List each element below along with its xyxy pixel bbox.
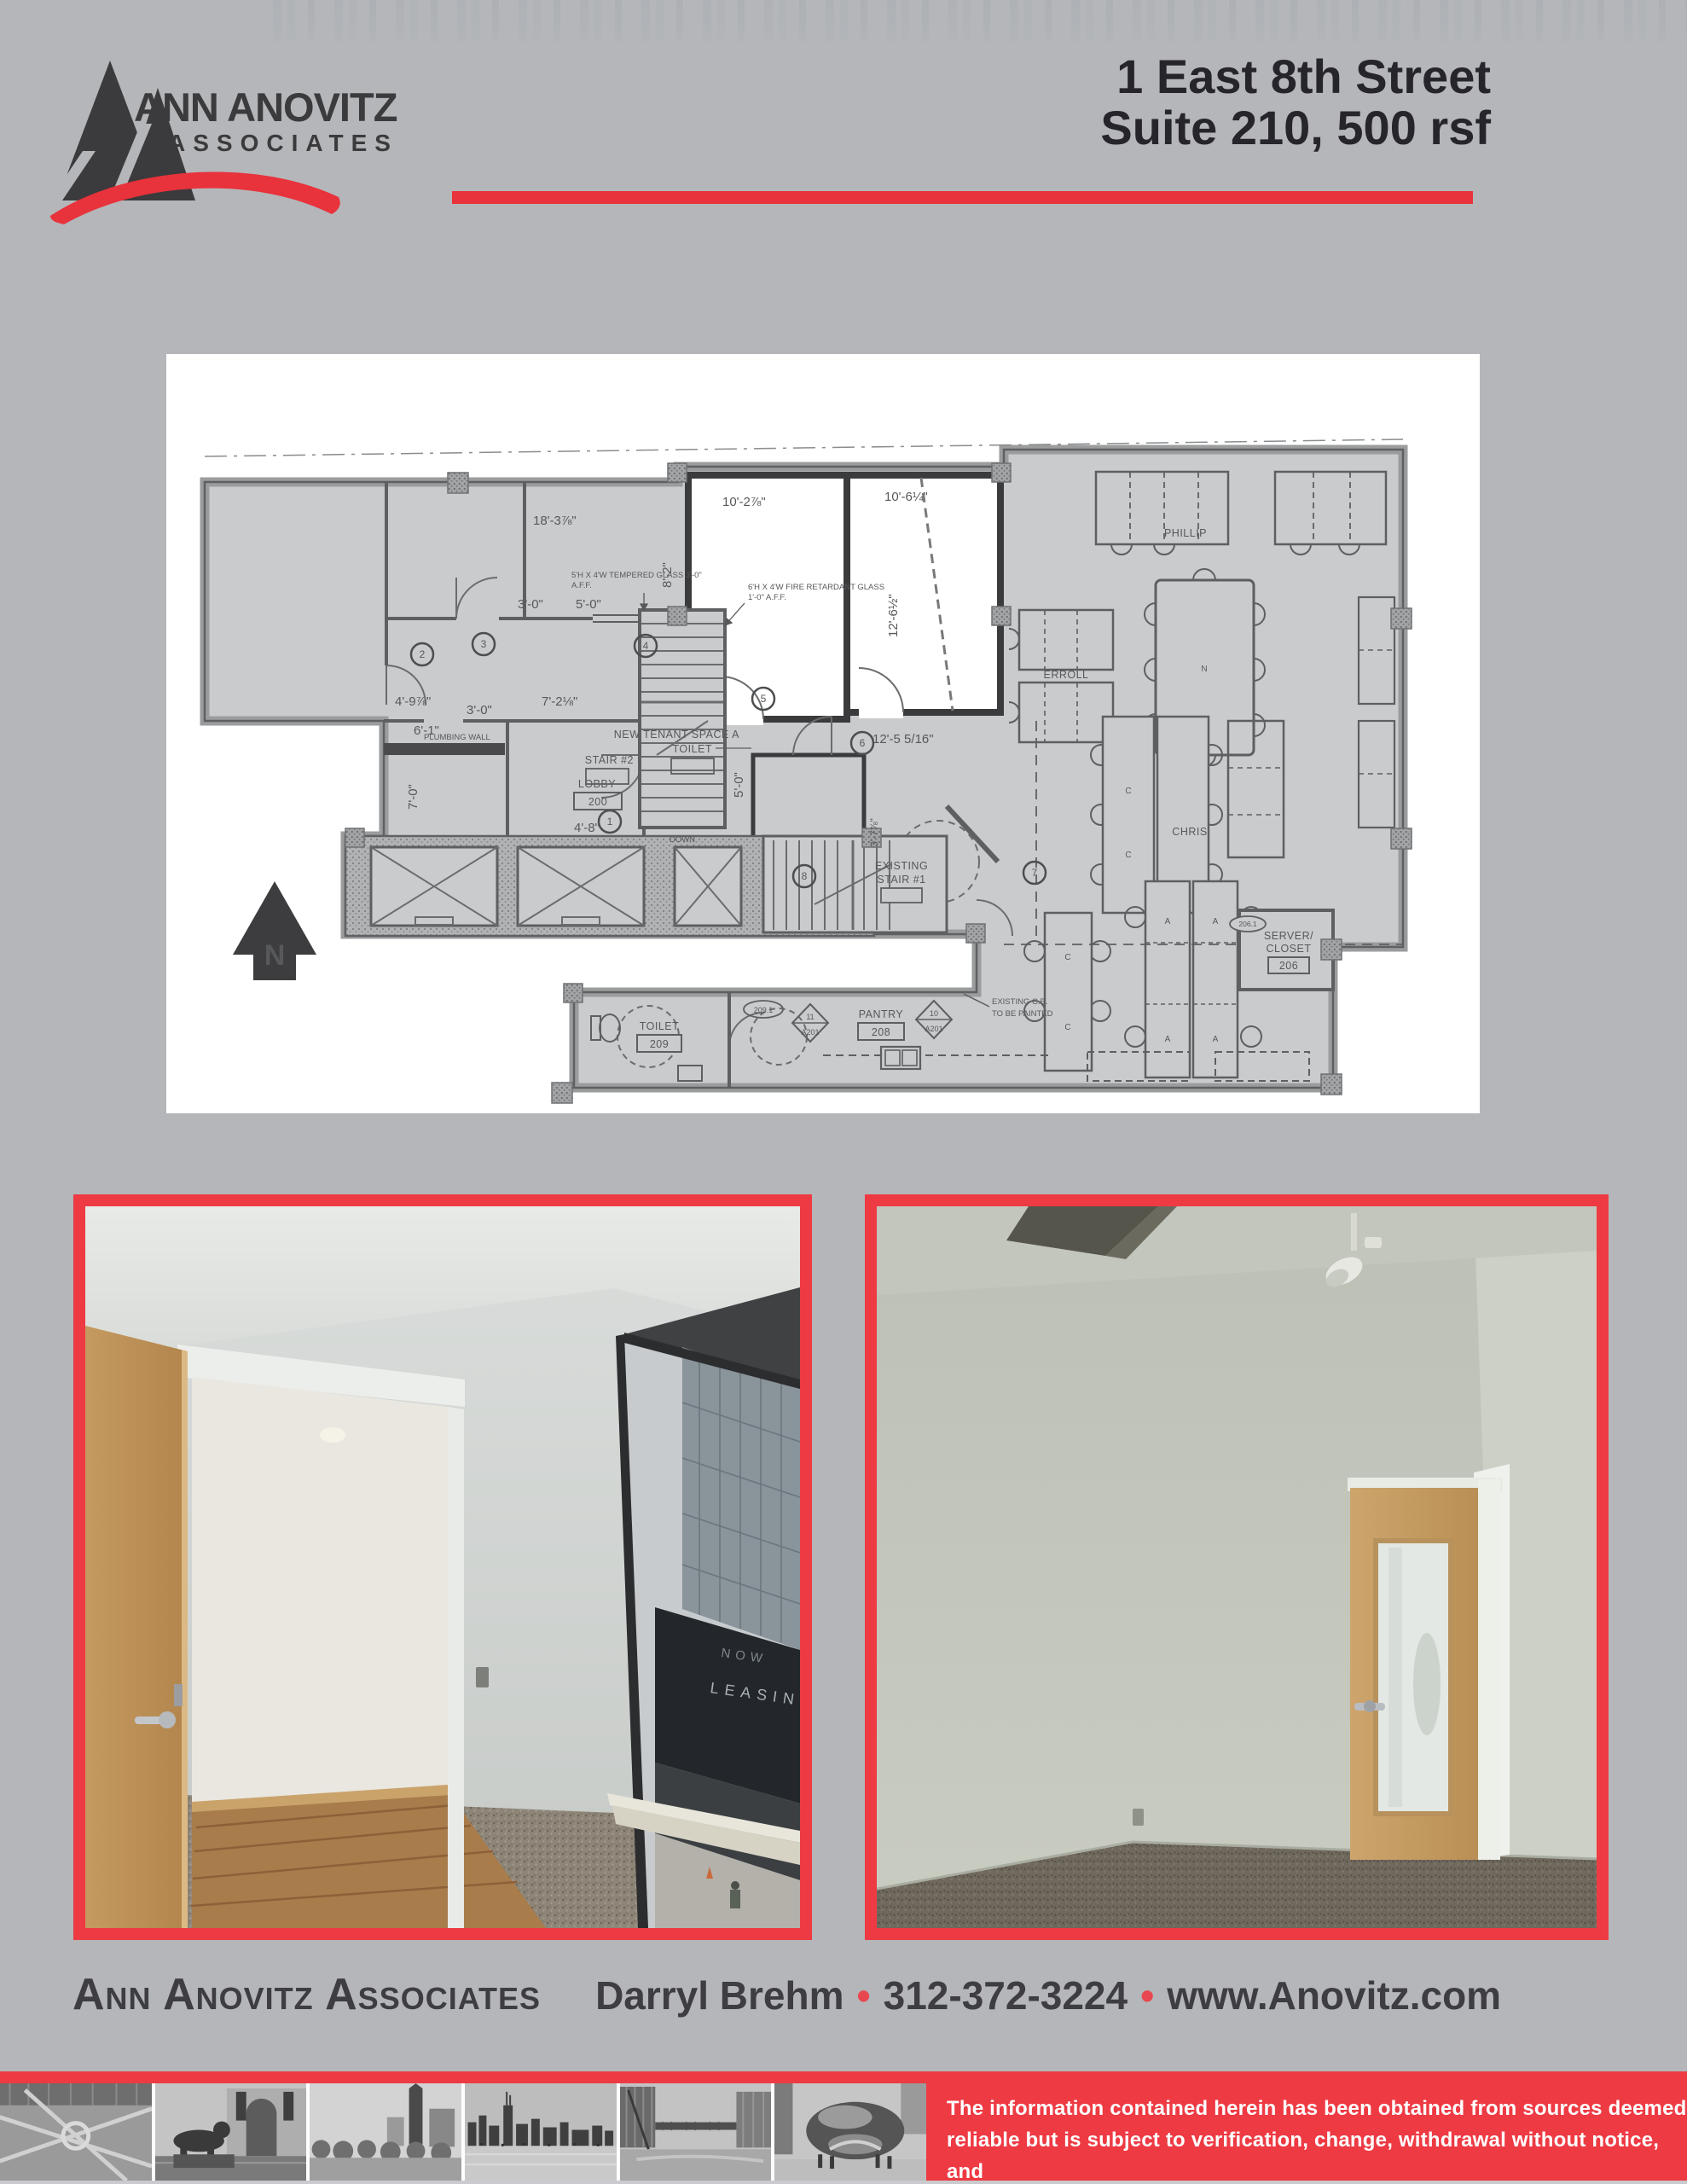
label-toilet: TOILET [640,1020,680,1032]
label-toilet-tag: 209.1 [754,1006,774,1014]
detail-11-sheet: A201 [801,1028,819,1037]
company-logo: ANN ANOVITZ ASSOCIATES [38,38,465,239]
strip-photo-park-water-tower [310,2083,461,2181]
label-server-tag: 206.1 [1238,920,1257,928]
detail-10-sheet: A201 [925,1025,942,1033]
dim-7-0: 7'-0" [406,784,420,810]
dim-3-0a: 3'-0" [518,597,543,612]
label-server-2: CLOSET [1266,943,1311,955]
dim-3-7: 3'-7⅞" [868,818,880,847]
dim-12-6: 12'-6½" [886,594,901,637]
svg-text:A: A [1213,1035,1219,1044]
footer-company-name: Ann Anovitz Associates [72,1969,541,2020]
wall-outlet [1133,1809,1144,1826]
door-tag-1: 1 [607,816,613,828]
svg-text:N: N [1201,665,1207,674]
label-tenant-1: NEW TENANT SPACE A [614,729,739,741]
strip-photo-grant-park-aerial [0,2083,152,2181]
svg-text:C: C [1125,851,1131,860]
detail-11: 11 [806,1013,814,1021]
door-tag-4: 4 [643,640,649,652]
north-arrow-icon: N [233,881,316,980]
strip-photo-cloud-gate-bean [774,2083,926,2181]
disclaimer-box: The information contained herein has bee… [926,2071,1687,2181]
logo-subname: ASSOCIATES [168,130,398,156]
stair-2 [640,610,725,828]
floor-plan-sheet: 1 2 3 4 5 6 7 8 18'-3⅞" 8'-2" 3'-0" 5'-0… [166,354,1480,1113]
title-suite: Suite 210, 500 rsf [1100,102,1491,154]
svg-text:C: C [1064,1023,1070,1032]
chicago-photo-strip [0,2083,926,2181]
label-lobby-no: 200 [588,796,607,808]
dim-12-5: 12'-5 5/16" [872,732,934,746]
interior-photo-door-image [877,1206,1597,1928]
note-glass2-1: 6'H X 4'W FIRE RETARDANT GLASS [748,583,884,592]
svg-text:C: C [1125,787,1131,796]
detail-10: 10 [930,1009,938,1018]
label-chris: CHRIS [1172,826,1207,838]
bullet-separator-icon: • [844,1973,884,2018]
dim-4-8: 4'-8" [574,821,600,835]
label-tenant-2: TOILET [672,743,712,755]
label-toilet-no: 209 [650,1038,669,1050]
dim-10-6: 10'-6¼" [884,490,928,504]
agent-phone[interactable]: 312-372-3224 [884,1973,1128,2018]
label-server-no: 206 [1279,960,1298,972]
note-glass1-1: 5'H X 4'W TEMPERED GLASS 3'-0" [571,571,702,580]
interior-photo-window-image: NOW LEASING [85,1206,800,1928]
label-erroll: ERROLL [1043,669,1088,681]
door-tag-6: 6 [860,737,866,749]
door-tag-5: 5 [761,693,767,705]
dim-10-2: 10'-2⅞" [722,495,766,509]
flyer-page: ANN ANOVITZ ASSOCIATES 1 East 8th Street… [0,0,1687,2184]
bottom-strip: The information contained herein has bee… [0,2071,1687,2181]
svg-text:A: A [1165,917,1171,926]
disclaimer-line1: The information contained herein has bee… [947,2093,1687,2124]
wood-frosted-door [1348,1478,1503,1860]
svg-text:A: A [1165,1035,1171,1044]
north-label: N [264,939,286,972]
strip-photo-chicago-river-bridge [620,2083,772,2181]
door-tag-8: 8 [802,870,808,882]
dim-3-0b: 3'-0" [467,703,492,717]
label-stair1-1: EXISTING [875,860,928,872]
property-title: 1 East 8th Street Suite 210, 500 rsf [1100,51,1491,154]
note-cb-1: EXISTING C.B. [992,997,1047,1007]
logo-name: ANN ANOVITZ [134,84,397,130]
dim-7-2: 7'-2⅛" [542,694,577,709]
strip-photo-art-institute-lion [155,2083,307,2181]
plumbing-wall [384,743,505,755]
door-tag-7: 7 [1032,867,1038,879]
label-stair2: STAIR #2 [585,754,634,766]
dim-18-3: 18'-3⅞" [533,514,577,528]
ghost-skyline-watermark [273,0,1687,46]
disclaimer-line2: reliable but is subject to verification,… [947,2124,1687,2184]
door-tag-2: 2 [420,648,426,660]
svg-text:C: C [1064,953,1070,962]
dim-5-0a: 5'-0" [576,597,601,612]
label-stair1-2: STAIR #1 [877,874,925,886]
title-address: 1 East 8th Street [1100,51,1491,102]
note-cb-2: TO BE PAINTED [992,1009,1053,1019]
door-tag-3: 3 [481,638,487,650]
agent-name: Darryl Brehm [595,1973,843,2018]
floor-plan-drawing: 1 2 3 4 5 6 7 8 18'-3⅞" 8'-2" 3'-0" 5'-0… [166,354,1480,1113]
bullet-separator-icon: • [1128,1973,1167,2018]
interior-photo-door [865,1194,1609,1940]
strip-photo-skyline-lakefront [465,2083,617,2181]
header-rule [452,191,1473,204]
website-link[interactable]: www.Anovitz.com [1167,1973,1501,2018]
open-wood-door [85,1326,188,1928]
wall-outlet [476,1667,489,1687]
label-phillip: PHILLIP [1164,527,1207,539]
label-pantry: PANTRY [859,1008,904,1020]
suite-210-rooms [688,475,1000,725]
svg-text:A: A [1213,917,1219,926]
footer-contact: Darryl Brehm•312-372-3224•www.Anovitz.co… [595,1972,1501,2018]
label-server-1: SERVER/ [1264,930,1313,942]
label-pantry-no: 208 [872,1026,890,1038]
note-plumbing: PLUMBING WALL [424,733,490,742]
label-down: DOWN [670,835,695,845]
note-glass2-2: 1'-0" A.F.F. [748,593,786,602]
footer-contact-row: Ann Anovitz Associates Darryl Brehm•312-… [72,1969,1616,2020]
dim-5-0b: 5'-0" [732,772,746,798]
note-glass1-2: A.F.F. [571,581,592,590]
dim-4-9: 4'-9⅞" [395,694,431,709]
interior-photo-window: NOW LEASING [73,1194,812,1940]
page-bottom-edge [0,2181,1687,2184]
